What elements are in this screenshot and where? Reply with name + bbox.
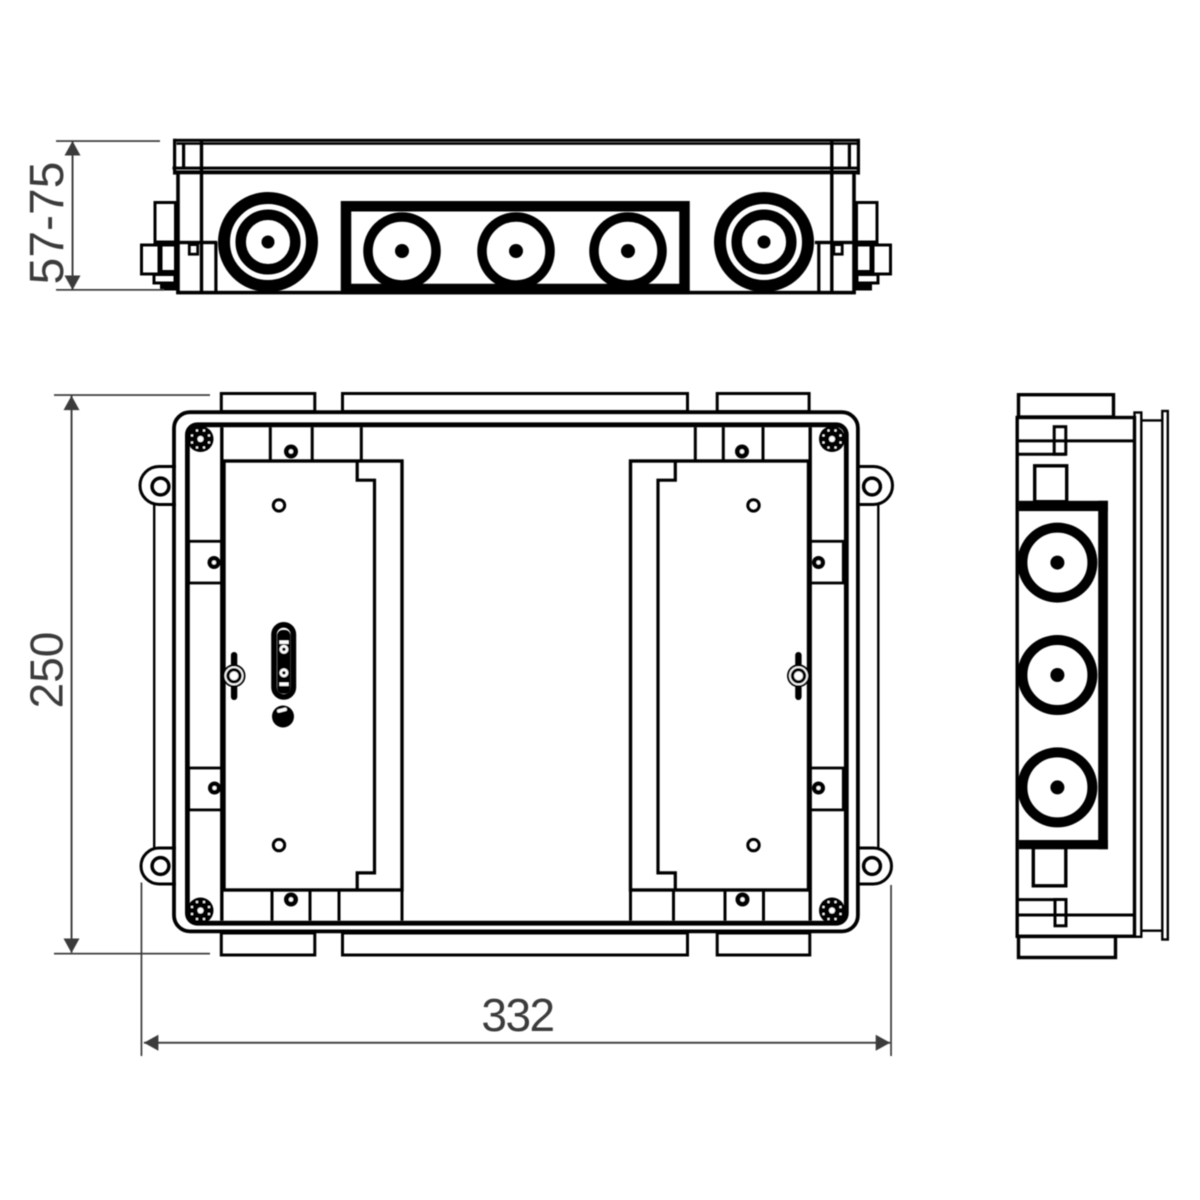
svg-text:250: 250 (21, 632, 73, 709)
svg-text:57-75: 57-75 (21, 162, 74, 285)
svg-text:332: 332 (481, 989, 553, 1041)
